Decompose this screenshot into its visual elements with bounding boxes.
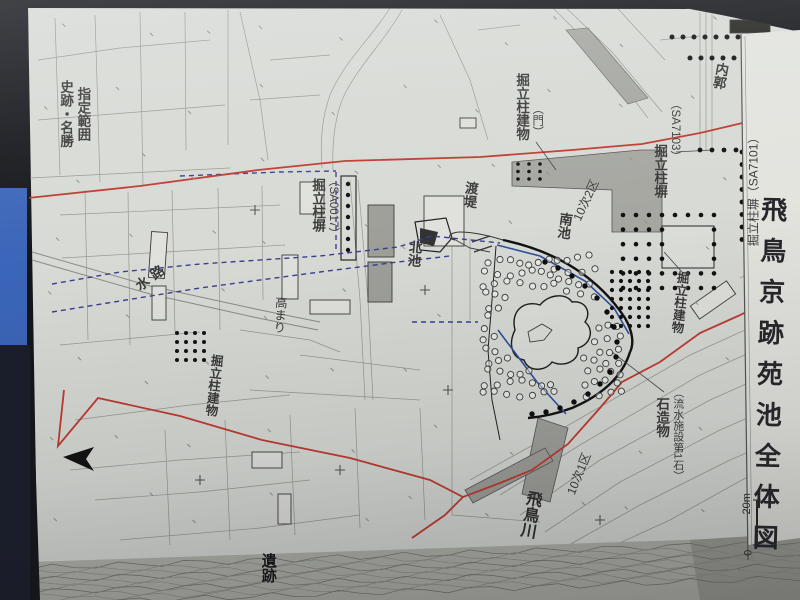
label-gate-building: 掘立柱建物 （門） bbox=[514, 73, 543, 141]
label-area-10-2: 10次2区 bbox=[571, 178, 601, 223]
label-fence-sa0017: 掘立柱塀 （SA0017） bbox=[310, 178, 339, 239]
label-ruins: 遺跡 bbox=[260, 553, 276, 583]
label-designated-area: 史跡・名勝 指定範囲 bbox=[58, 80, 89, 148]
label-crossing-bank: 渡堤 bbox=[461, 180, 478, 208]
label-designated-area-line1: 史跡・名勝 bbox=[58, 80, 72, 148]
label-mound: 高まり bbox=[271, 296, 287, 334]
label-stone-object-note: （流水施設第1石） bbox=[671, 387, 683, 481]
sheet-title: 飛鳥京跡苑池全体図 bbox=[749, 196, 786, 566]
label-asuka-river: 飛鳥川 bbox=[516, 489, 541, 539]
label-designated-area-line2: 指定範囲 bbox=[75, 87, 89, 141]
label-fence-sa0017-id: （SA0017） bbox=[327, 175, 339, 239]
label-area-10-1: 10次1区 bbox=[565, 451, 593, 497]
label-gate-building-name: 掘立柱建物 bbox=[514, 73, 528, 141]
label-building-left: 掘立柱建物 bbox=[203, 353, 223, 417]
label-fence-sa7103-id: （SA7103） bbox=[669, 98, 681, 162]
label-south-pond: 南池 bbox=[554, 211, 572, 240]
label-fence-sa0017-name: 掘立柱塀 bbox=[310, 178, 324, 232]
photo-of-site-map: 史跡・名勝 指定範囲 掘立柱塀 （SA0017） 水路 高まり 掘立柱建物 北池… bbox=[0, 0, 800, 600]
scale-label-20m: 20m bbox=[742, 493, 754, 514]
scale-label-zero: 0 bbox=[743, 550, 755, 556]
map-labels: 史跡・名勝 指定範囲 掘立柱塀 （SA0017） 水路 高まり 掘立柱建物 北池… bbox=[0, 0, 800, 600]
label-fence-sa7103-name: 掘立柱塀 bbox=[652, 144, 666, 198]
label-stone-object: 石造物 （流水施設第1石） bbox=[654, 387, 683, 481]
label-fence-sa7103: 掘立柱塀 （SA7103） bbox=[652, 98, 681, 198]
label-waterway: 水路 bbox=[133, 260, 171, 293]
label-gate-building-note: （門） bbox=[531, 103, 543, 138]
label-inner-enclosure: 内郭 bbox=[710, 61, 729, 90]
label-building-right: 掘立柱建物 bbox=[669, 270, 689, 334]
label-north-pond: 北池 bbox=[405, 239, 421, 267]
label-stone-object-name: 石造物 bbox=[654, 397, 668, 438]
